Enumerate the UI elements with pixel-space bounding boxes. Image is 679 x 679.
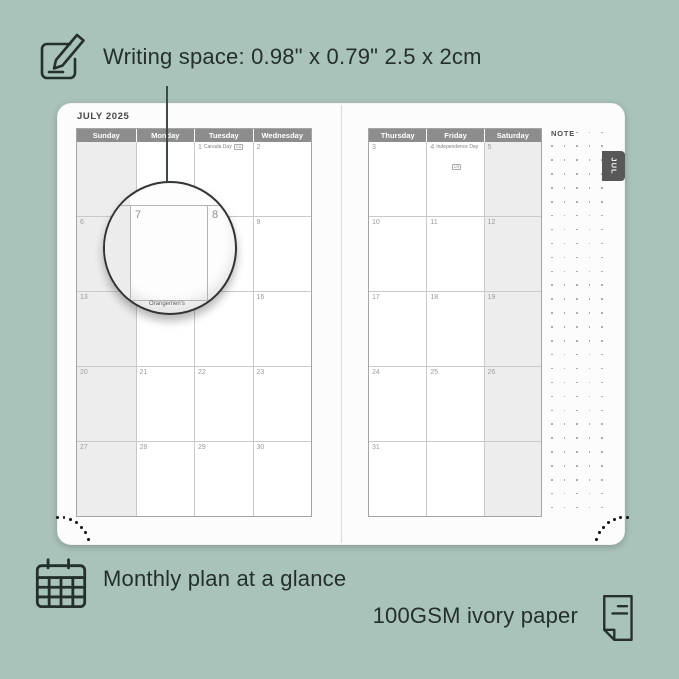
cell-date: 27 bbox=[80, 444, 88, 451]
note-dot bbox=[576, 159, 578, 161]
note-dot bbox=[576, 423, 578, 425]
calendar-cell: 5 bbox=[484, 142, 541, 216]
note-dot bbox=[551, 368, 553, 370]
magnifier-circle: 7 8 Orangemen's bbox=[103, 181, 237, 315]
note-dot bbox=[601, 507, 603, 509]
note-dot bbox=[576, 479, 578, 481]
note-dot bbox=[601, 229, 603, 231]
note-dot bbox=[551, 298, 553, 300]
note-dot bbox=[564, 423, 566, 425]
magnified-sunday-shading bbox=[105, 183, 130, 313]
note-dot bbox=[551, 437, 553, 439]
note-dot bbox=[589, 451, 591, 453]
note-dot bbox=[551, 284, 553, 286]
day-header-sunday: Sunday bbox=[77, 129, 136, 142]
magnified-date-8: 8 bbox=[212, 209, 218, 221]
stitch-dot bbox=[607, 521, 610, 524]
calendar-cell: 10 bbox=[369, 216, 426, 291]
note-dot bbox=[576, 229, 578, 231]
note-dot bbox=[601, 132, 603, 134]
calendar-cell: 3 bbox=[369, 142, 426, 216]
note-dot bbox=[564, 173, 566, 175]
calendar-cell: 22 bbox=[194, 366, 253, 441]
note-dot bbox=[551, 340, 553, 342]
note-dot bbox=[564, 451, 566, 453]
calendar-cell: 12 bbox=[484, 216, 541, 291]
page-spine bbox=[341, 105, 342, 543]
cell-date: 4 bbox=[430, 144, 434, 151]
cell-date: 9 bbox=[257, 219, 261, 226]
note-dot bbox=[551, 173, 553, 175]
cell-date: 17 bbox=[372, 294, 380, 301]
note-dot bbox=[589, 507, 591, 509]
calendar-cell: 18 bbox=[426, 291, 483, 366]
note-dot bbox=[551, 493, 553, 495]
note-dot bbox=[564, 257, 566, 259]
note-dot bbox=[551, 159, 553, 161]
month-tab-jul: JUL bbox=[602, 151, 625, 181]
calendar-cell: 30 bbox=[253, 441, 312, 516]
cell-date: 25 bbox=[430, 369, 438, 376]
calendar-cell: 25 bbox=[426, 366, 483, 441]
note-dot bbox=[589, 410, 591, 412]
note-dot bbox=[601, 298, 603, 300]
stitch-dot bbox=[602, 526, 605, 529]
note-dot bbox=[564, 298, 566, 300]
note-dot bbox=[589, 257, 591, 259]
calendar-cell: 26 bbox=[484, 366, 541, 441]
note-dot bbox=[551, 451, 553, 453]
note-dot bbox=[564, 354, 566, 356]
note-dot bbox=[564, 284, 566, 286]
note-dot bbox=[576, 437, 578, 439]
note-dot bbox=[551, 465, 553, 467]
note-dot bbox=[564, 493, 566, 495]
note-dot bbox=[551, 507, 553, 509]
day-header-wednesday: Wednesday bbox=[253, 129, 312, 142]
day-header-tuesday: Tuesday bbox=[194, 129, 253, 142]
note-dot bbox=[601, 423, 603, 425]
calendar-cell: 31 bbox=[369, 441, 426, 516]
cell-date: 16 bbox=[257, 294, 265, 301]
cell-date: 1 bbox=[198, 144, 202, 151]
cell-date: 11 bbox=[430, 219, 437, 226]
cell-date: 23 bbox=[257, 369, 265, 376]
cell-date: 2 bbox=[257, 144, 261, 151]
pencil-document-icon bbox=[36, 32, 88, 89]
note-dot bbox=[551, 187, 553, 189]
note-dot bbox=[589, 354, 591, 356]
note-dot bbox=[601, 284, 603, 286]
stitch-dot bbox=[626, 516, 629, 519]
note-dot bbox=[576, 298, 578, 300]
cell-event: Independence Day bbox=[436, 144, 478, 150]
calendar-cell: 19 bbox=[484, 291, 541, 366]
note-dot bbox=[601, 257, 603, 259]
note-dot bbox=[576, 354, 578, 356]
product-infographic: Writing space: 0.98" x 0.79" 2.5 x 2cm J… bbox=[0, 0, 679, 679]
note-dot bbox=[589, 493, 591, 495]
note-dot bbox=[601, 271, 603, 273]
calendar-cell: 16 bbox=[253, 291, 312, 366]
note-dot bbox=[601, 354, 603, 356]
note-dot bbox=[601, 243, 603, 245]
note-dot bbox=[576, 215, 578, 217]
cell-date: 28 bbox=[140, 444, 148, 451]
note-dot bbox=[601, 340, 603, 342]
note-dot bbox=[576, 340, 578, 342]
note-dot bbox=[589, 437, 591, 439]
note-dot bbox=[601, 479, 603, 481]
calendar-cell: 21 bbox=[136, 366, 195, 441]
note-dot bbox=[601, 465, 603, 467]
note-dot bbox=[576, 396, 578, 398]
note-dot bbox=[601, 382, 603, 384]
note-dot bbox=[601, 396, 603, 398]
cell-date: 13 bbox=[80, 294, 88, 301]
note-dot bbox=[589, 187, 591, 189]
note-dot bbox=[564, 340, 566, 342]
note-dot bbox=[564, 326, 566, 328]
note-dot bbox=[551, 423, 553, 425]
calendar-cell: 4Independence DayUS bbox=[426, 142, 483, 216]
note-dot bbox=[551, 354, 553, 356]
calendar-cell: 29 bbox=[194, 441, 253, 516]
note-dot bbox=[576, 382, 578, 384]
note-dot bbox=[551, 243, 553, 245]
cell-date: 30 bbox=[257, 444, 265, 451]
calendar-cell bbox=[426, 441, 483, 516]
stitch-dot bbox=[598, 531, 601, 534]
note-label: NOTE bbox=[551, 129, 575, 138]
cell-date: 29 bbox=[198, 444, 206, 451]
cell-date: 12 bbox=[488, 219, 496, 226]
stitch-dot bbox=[69, 518, 72, 521]
note-dot bbox=[589, 340, 591, 342]
note-dot bbox=[564, 396, 566, 398]
magnified-gridline bbox=[130, 205, 131, 300]
note-dot bbox=[564, 271, 566, 273]
note-dot bbox=[564, 437, 566, 439]
note-dot bbox=[564, 465, 566, 467]
note-dot bbox=[576, 410, 578, 412]
note-dot bbox=[576, 257, 578, 259]
note-dot bbox=[589, 284, 591, 286]
note-dot bbox=[589, 382, 591, 384]
day-header-thursday: Thursday bbox=[369, 129, 426, 142]
calendar-cell: 20 bbox=[77, 366, 136, 441]
note-dot bbox=[551, 257, 553, 259]
paper-caption: 100GSM ivory paper bbox=[373, 603, 578, 629]
stitch-dot bbox=[595, 538, 598, 541]
note-dot bbox=[601, 368, 603, 370]
note-dot bbox=[551, 410, 553, 412]
calendar-cell: 17 bbox=[369, 291, 426, 366]
cell-date: 10 bbox=[372, 219, 380, 226]
note-dot bbox=[564, 382, 566, 384]
magnified-event-text: Orangemen's bbox=[149, 301, 185, 307]
note-dot bbox=[589, 215, 591, 217]
day-header-saturday: Saturday bbox=[484, 129, 541, 142]
month-title: JULY 2025 bbox=[77, 111, 129, 122]
stitch-dot bbox=[87, 538, 90, 541]
paper-sheet-icon bbox=[597, 591, 637, 650]
note-dot bbox=[564, 368, 566, 370]
day-header-friday: Friday bbox=[426, 129, 483, 142]
note-dot bbox=[564, 243, 566, 245]
calendar-cell: 27 bbox=[77, 441, 136, 516]
note-dot bbox=[589, 298, 591, 300]
note-dot bbox=[601, 145, 603, 147]
note-dot bbox=[576, 187, 578, 189]
calendar-cell: 28 bbox=[136, 441, 195, 516]
cell-date: 19 bbox=[488, 294, 496, 301]
monthly-plan-caption: Monthly plan at a glance bbox=[103, 566, 346, 592]
note-dot bbox=[601, 312, 603, 314]
note-dot bbox=[551, 229, 553, 231]
note-dot bbox=[589, 396, 591, 398]
cell-date: 5 bbox=[488, 144, 492, 151]
note-dot bbox=[576, 493, 578, 495]
note-dot bbox=[576, 173, 578, 175]
note-dot bbox=[601, 215, 603, 217]
note-dot bbox=[576, 271, 578, 273]
note-dot bbox=[589, 465, 591, 467]
magnified-date-7: 7 bbox=[135, 209, 141, 221]
pointer-line bbox=[166, 86, 168, 182]
note-dot bbox=[589, 201, 591, 203]
cell-date: 26 bbox=[488, 369, 496, 376]
note-dot bbox=[551, 145, 553, 147]
flag-badge-ca: CA bbox=[234, 144, 244, 150]
note-dot bbox=[589, 312, 591, 314]
note-dot bbox=[576, 201, 578, 203]
note-dot bbox=[576, 312, 578, 314]
cell-date: 20 bbox=[80, 369, 88, 376]
note-dot bbox=[551, 326, 553, 328]
note-dot bbox=[551, 479, 553, 481]
note-dot bbox=[551, 201, 553, 203]
note-dot bbox=[551, 312, 553, 314]
note-dot bbox=[564, 479, 566, 481]
cell-event: Canada Day bbox=[204, 144, 232, 150]
note-dot bbox=[551, 382, 553, 384]
note-dot bbox=[589, 368, 591, 370]
day-header-monday: Monday bbox=[136, 129, 195, 142]
calendar-cell: 11 bbox=[426, 216, 483, 291]
note-dot bbox=[576, 145, 578, 147]
note-dot bbox=[589, 132, 591, 134]
calendar-cell: 24 bbox=[369, 366, 426, 441]
stitch-dot bbox=[80, 526, 83, 529]
note-dot bbox=[589, 479, 591, 481]
note-dot bbox=[576, 465, 578, 467]
note-dot bbox=[576, 451, 578, 453]
note-dot bbox=[564, 145, 566, 147]
note-dot bbox=[576, 368, 578, 370]
calendar-icon bbox=[33, 555, 89, 618]
note-dot bbox=[601, 187, 603, 189]
note-dot bbox=[601, 451, 603, 453]
note-dot bbox=[601, 410, 603, 412]
note-dot bbox=[564, 187, 566, 189]
stitch-dot bbox=[56, 516, 59, 519]
right-month-table: ThursdayFridaySaturday34Independence Day… bbox=[368, 128, 542, 517]
magnified-gridline bbox=[105, 205, 235, 206]
note-dot bbox=[589, 271, 591, 273]
note-dot bbox=[576, 507, 578, 509]
note-dot bbox=[589, 229, 591, 231]
note-dot bbox=[589, 423, 591, 425]
note-dot bbox=[564, 410, 566, 412]
note-dot bbox=[589, 173, 591, 175]
flag-badge-us: US bbox=[452, 164, 462, 170]
note-dot bbox=[564, 159, 566, 161]
calendar-cell: 23 bbox=[253, 366, 312, 441]
note-dot bbox=[589, 243, 591, 245]
note-dot bbox=[564, 507, 566, 509]
note-dot bbox=[564, 215, 566, 217]
magnified-gridline bbox=[207, 205, 208, 300]
month-tab-label: JUL bbox=[609, 157, 618, 174]
calendar-cell: 9 bbox=[253, 216, 312, 291]
cell-date: 6 bbox=[80, 219, 84, 226]
note-dot bbox=[589, 159, 591, 161]
note-dot bbox=[576, 326, 578, 328]
planner-card: JULY 2025 SundayMondayTuesdayWednesday1C… bbox=[57, 103, 625, 545]
stitch-dot bbox=[613, 518, 616, 521]
note-dot bbox=[564, 312, 566, 314]
note-dot bbox=[576, 284, 578, 286]
note-dot bbox=[551, 396, 553, 398]
note-dot bbox=[551, 271, 553, 273]
note-dot bbox=[576, 132, 578, 134]
note-dot bbox=[601, 437, 603, 439]
note-dot bbox=[589, 145, 591, 147]
note-dot bbox=[576, 243, 578, 245]
note-dot bbox=[551, 215, 553, 217]
cell-date: 31 bbox=[372, 444, 380, 451]
cell-date: 24 bbox=[372, 369, 380, 376]
cell-date: 18 bbox=[430, 294, 438, 301]
cell-date: 21 bbox=[140, 369, 148, 376]
note-dot bbox=[601, 201, 603, 203]
calendar-cell bbox=[484, 441, 541, 516]
note-dot bbox=[589, 326, 591, 328]
calendar-cell: 2 bbox=[253, 142, 312, 216]
note-dot bbox=[601, 493, 603, 495]
note-dot bbox=[564, 201, 566, 203]
cell-date: 22 bbox=[198, 369, 206, 376]
writing-space-caption: Writing space: 0.98" x 0.79" 2.5 x 2cm bbox=[103, 44, 482, 70]
cell-date: 3 bbox=[372, 144, 376, 151]
note-dot bbox=[601, 326, 603, 328]
note-dot bbox=[564, 229, 566, 231]
